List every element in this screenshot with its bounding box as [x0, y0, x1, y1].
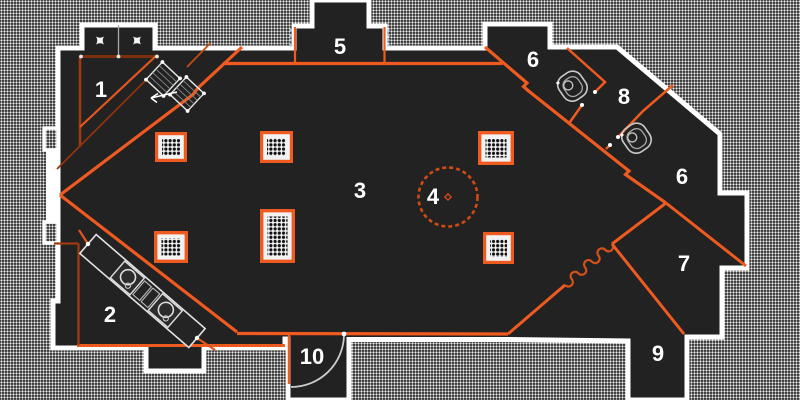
svg-text:4: 4	[427, 184, 440, 209]
svg-text:1: 1	[95, 77, 107, 102]
svg-text:6: 6	[676, 164, 688, 189]
svg-text:6: 6	[527, 47, 539, 72]
svg-text:10: 10	[300, 344, 324, 369]
svg-text:7: 7	[678, 251, 690, 276]
svg-text:5: 5	[334, 34, 346, 59]
svg-text:8: 8	[618, 84, 630, 109]
svg-text:3: 3	[354, 178, 366, 203]
svg-text:9: 9	[652, 341, 664, 366]
svg-text:2: 2	[104, 302, 116, 327]
